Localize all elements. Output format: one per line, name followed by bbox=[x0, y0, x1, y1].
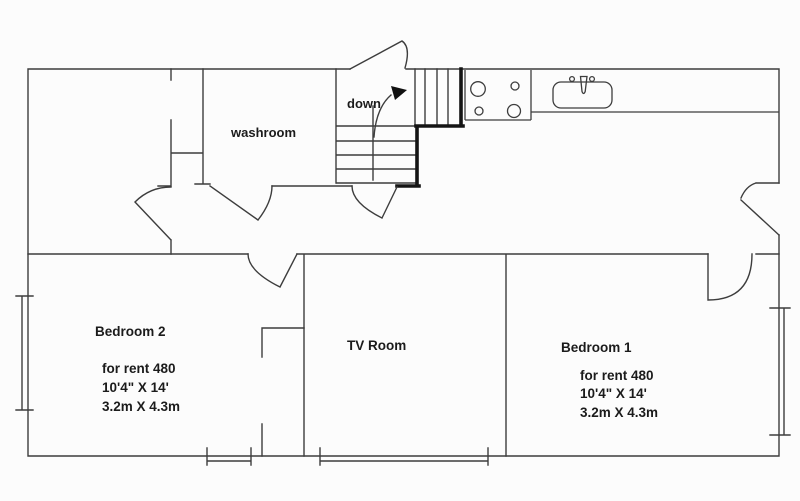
bedroom2-rent: for rent 480 bbox=[102, 361, 176, 376]
sink-icon bbox=[553, 77, 612, 109]
entry-door bbox=[350, 41, 407, 69]
window-right-bedroom1 bbox=[770, 308, 790, 435]
bedroom1-door bbox=[708, 254, 752, 300]
tv-room-door bbox=[248, 254, 297, 287]
understair-door bbox=[352, 186, 397, 218]
washroom-label: washroom bbox=[230, 125, 296, 140]
floor-plan-page: washroom down Bedroom 2 for rent 480 10'… bbox=[0, 0, 800, 501]
window-left bbox=[16, 296, 33, 410]
outer-walls bbox=[28, 69, 779, 456]
bedroom1-label: Bedroom 1 bbox=[561, 340, 632, 355]
bedroom1-size-imperial: 10'4" X 14' bbox=[580, 386, 647, 401]
interior-walls bbox=[28, 69, 779, 456]
bedroom2-door bbox=[135, 187, 171, 254]
tv-room-label: TV Room bbox=[347, 338, 406, 353]
bedroom2-closet-walls bbox=[262, 328, 304, 456]
stairs-down-label: down bbox=[347, 96, 381, 111]
bedroom2-label: Bedroom 2 bbox=[95, 324, 166, 339]
bedroom1-size-metric: 3.2m X 4.3m bbox=[580, 405, 658, 420]
bedroom2-size-metric: 3.2m X 4.3m bbox=[102, 399, 180, 414]
bedroom1-rent: for rent 480 bbox=[580, 368, 654, 383]
floor-plan-drawing: washroom down Bedroom 2 for rent 480 10'… bbox=[0, 0, 800, 501]
washroom-door bbox=[210, 186, 272, 220]
down-arrow-icon bbox=[391, 86, 407, 100]
bedroom2-size-imperial: 10'4" X 14' bbox=[102, 380, 169, 395]
right-exterior-door bbox=[741, 183, 779, 235]
stove-burners-icon bbox=[471, 82, 521, 118]
